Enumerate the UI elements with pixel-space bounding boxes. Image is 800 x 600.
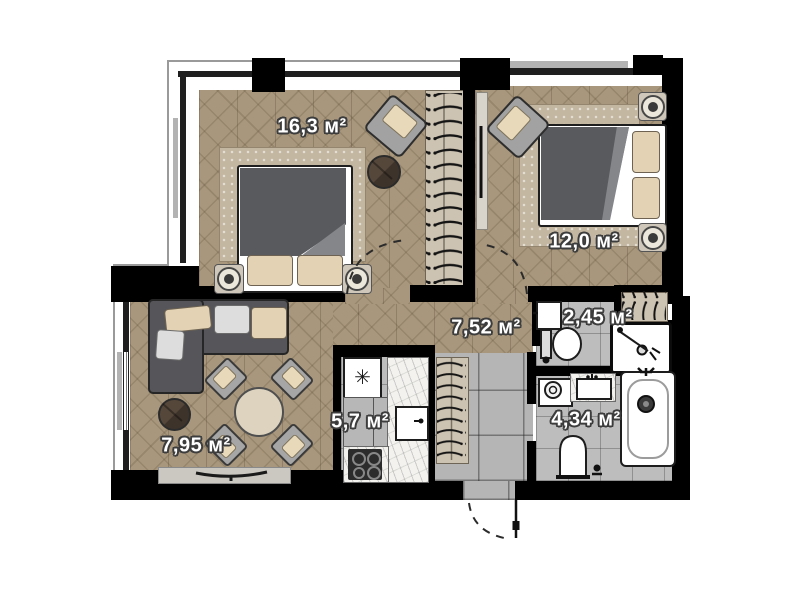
wall-wc-closet-top	[616, 285, 672, 292]
pouf-living	[158, 398, 191, 431]
bottom-wall-kitchen	[333, 481, 463, 500]
burner	[353, 467, 365, 479]
sofa-pillow	[214, 305, 250, 334]
entry-door-floor	[463, 481, 515, 500]
pillow	[632, 131, 660, 173]
pillow	[632, 177, 660, 219]
washing-machine	[538, 378, 573, 407]
wall-entry-bath-lower	[527, 441, 536, 483]
burner	[352, 452, 366, 466]
facade-line-left-upper	[167, 60, 169, 266]
stove	[348, 449, 382, 480]
facade-line-top	[167, 60, 462, 62]
door-arc-entrance	[469, 503, 509, 539]
room-label-hallway: 7,52 м²	[451, 317, 520, 340]
column-top-3	[633, 55, 663, 75]
door-threshold-bedroom-2	[477, 288, 528, 304]
lamp	[641, 95, 665, 119]
window-strip-bedroom-2	[508, 61, 628, 68]
wall-wardrobe-bottom	[410, 285, 475, 302]
radiator-living	[117, 352, 122, 430]
chair-cushion	[212, 365, 237, 390]
column-top-1	[252, 58, 285, 92]
room-label-wc: 2,45 м²	[563, 307, 632, 330]
lamp	[217, 267, 241, 291]
bathtub	[620, 371, 676, 467]
bottom-wall-bathroom	[515, 481, 690, 500]
bathroom-sink	[576, 378, 612, 400]
room-label-kitchen: 5,7 м²	[331, 411, 389, 434]
lamp-core	[352, 274, 362, 284]
tv-stand	[158, 467, 291, 484]
lamp-core	[224, 274, 234, 284]
wc-sink	[536, 301, 562, 330]
bed-bedroom-2	[538, 124, 667, 227]
bathtub-inner	[627, 379, 669, 459]
lamp	[641, 226, 665, 250]
radiator-balcony	[173, 118, 178, 218]
room-label-living: 7,95 м²	[161, 435, 230, 458]
entrance-door-handle	[513, 521, 520, 530]
floor-plan: ✳	[0, 0, 800, 600]
tv-panel-bedroom-2	[476, 92, 488, 230]
freezer-icon: ✳	[345, 361, 380, 395]
sofa-pillow	[164, 305, 212, 334]
wardrobe-bedroom-1	[425, 90, 465, 287]
bed-bedroom-1	[237, 165, 353, 293]
window-wall-top-left	[178, 71, 480, 77]
shower	[610, 322, 672, 374]
pouf-bedroom-1	[367, 155, 401, 189]
lamp-core	[648, 102, 658, 112]
wall-kitchen-top	[333, 345, 435, 357]
room-label-bedroom-2: 12,0 м²	[549, 231, 618, 254]
dining-table	[234, 387, 284, 437]
closet-entry	[436, 357, 469, 464]
wall-wardrobe-right	[463, 86, 475, 286]
chair-cushion	[281, 434, 306, 459]
pillow	[297, 255, 343, 286]
window-wall-balcony-left	[180, 71, 186, 263]
wall-bedroom2-bottom	[528, 286, 620, 302]
sofa-pillow	[155, 329, 185, 361]
fridge: ✳	[343, 357, 382, 400]
wall-entry-bath-upper	[527, 352, 536, 404]
pillow	[247, 255, 293, 286]
sofa-pillow	[251, 307, 287, 339]
kitchen-sink	[395, 406, 429, 441]
room-label-bathroom: 4,34 м²	[551, 409, 620, 432]
burner	[367, 452, 381, 466]
room-label-bedroom-1: 16,3 м²	[277, 116, 346, 139]
window-living-glazing	[126, 352, 128, 430]
armchair-cushion	[495, 104, 531, 141]
burner	[367, 466, 381, 480]
chair-cushion	[281, 365, 306, 390]
left-step-wall	[111, 266, 199, 302]
lamp	[345, 267, 369, 291]
lamp-core	[648, 233, 658, 243]
